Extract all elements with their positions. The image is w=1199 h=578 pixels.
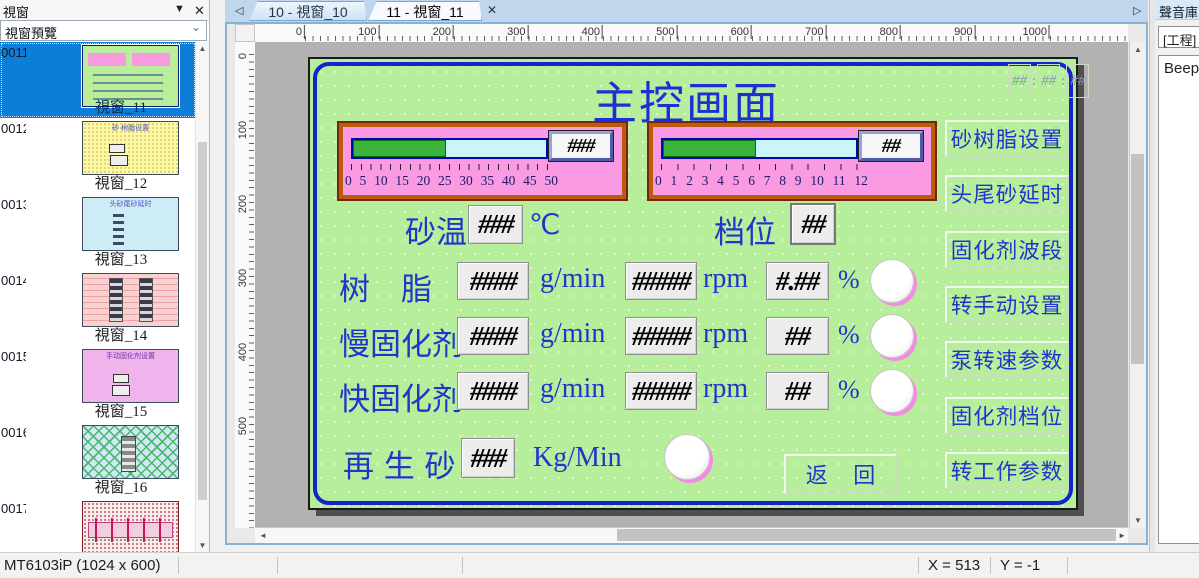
window-thumbnail[interactable]: 头砂尾砂延时 <box>82 197 179 251</box>
tab-scroll-right-icon[interactable]: ▷ <box>1133 4 1141 17</box>
ruler-label: 500 <box>237 411 249 441</box>
dosing-row: 慢固化剂####g/min#####rpm##% <box>339 316 959 362</box>
window-list-item[interactable]: 0012砂·树脂设置視窗_12 <box>0 118 196 194</box>
statusbar-divider <box>277 557 278 574</box>
cursor-y-coordinate: Y = -1 <box>1000 557 1040 574</box>
ruler-corner <box>235 24 255 42</box>
speed-value-display[interactable]: ##### <box>625 317 697 355</box>
preview-mode-label: 視窗預覽 <box>5 23 57 42</box>
pilot-lamp[interactable] <box>870 369 914 413</box>
preview-mode-select[interactable]: 視窗預覽 ⌄ <box>0 20 207 41</box>
thumbnail-title: 手动固化剂设置 <box>83 351 178 361</box>
ruler-label: 200 <box>237 189 249 219</box>
dosing-row: 快固化剂####g/min#####rpm##% <box>339 371 959 417</box>
window-thumbnail[interactable] <box>82 425 179 479</box>
regen-sand-unit: Kg/Min <box>533 442 622 474</box>
flow-value-display[interactable]: #### <box>457 372 529 410</box>
window-list-item[interactable]: 0011視窗_11 <box>0 42 196 118</box>
menu-button[interactable]: 固化剂档位 <box>945 397 1069 434</box>
sound-source-select[interactable]: [工程] <box>1158 26 1199 48</box>
thumbnail-title: 头砂尾砂延时 <box>83 199 178 209</box>
scroll-down-icon[interactable]: ▼ <box>1134 516 1142 525</box>
window-list-item[interactable]: 0016視窗_16 <box>0 422 196 498</box>
horizontal-ruler: 01002003004005006007008009001000 <box>255 24 1128 43</box>
ruler-label: 400 <box>582 25 603 39</box>
window-thumbnail[interactable]: 砂·树脂设置 <box>82 121 179 175</box>
ruler-label: 900 <box>954 25 975 39</box>
speed-unit-label: rpm <box>703 373 748 405</box>
statusbar-divider <box>918 557 919 574</box>
sidebar-scrollbar[interactable]: ▲ ▼ <box>195 42 209 552</box>
window-thumbnail[interactable]: 手动固化剂设置 <box>82 349 179 403</box>
flow-unit-label: g/min <box>540 373 605 405</box>
tab-bar: ◁ 10 - 視窗_10 11 - 視窗_11 ✕ ▷ <box>225 0 1148 22</box>
speed-value-display[interactable]: ##### <box>625 372 697 410</box>
window-name: 視窗_14 <box>56 324 186 345</box>
tab-label: 10 - 視窗_10 <box>268 4 347 20</box>
statusbar-divider <box>462 557 463 574</box>
window-list-item[interactable]: 0014視窗_14 <box>0 270 196 346</box>
menu-button[interactable]: 泵转速参数 <box>945 341 1069 378</box>
window-list-item[interactable]: 0017視窗_17 <box>0 498 196 552</box>
menu-button[interactable]: 砂树脂设置 <box>945 120 1069 157</box>
ruler-label: 100 <box>237 115 249 145</box>
percent-value-display[interactable]: ## <box>766 317 829 355</box>
vertical-ruler: 0100200300400500 <box>235 42 256 528</box>
window-list-item[interactable]: 0015手动固化剂设置視窗_15 <box>0 346 196 422</box>
window-name: 視窗_12 <box>56 172 186 193</box>
app-window: 視窗 ▼ ✕ 視窗預覽 ⌄ 0011視窗_110012砂·树脂设置視窗_1200… <box>0 0 1199 578</box>
ruler-ticks <box>249 54 254 528</box>
window-name: 視窗_16 <box>56 476 186 497</box>
pilot-lamp[interactable] <box>664 434 710 480</box>
ruler-label: 0 <box>237 42 249 71</box>
window-number: 0015 <box>1 349 26 364</box>
window-number: 0011 <box>1 45 26 60</box>
speed-unit-label: rpm <box>703 318 748 350</box>
statusbar-divider <box>990 557 991 574</box>
sound-library-panel: 聲音庫 [工程] Beep <box>1155 0 1199 552</box>
ruler-label: 600 <box>731 25 752 39</box>
cursor-x-coordinate: X = 513 <box>928 557 980 574</box>
device-model: MT6103iP (1024 x 600) <box>4 557 160 574</box>
flow-unit-label: g/min <box>540 263 605 295</box>
speed-value-display[interactable]: ##### <box>625 262 697 300</box>
window-name: 視窗_13 <box>56 248 186 269</box>
flow-unit-label: g/min <box>540 318 605 350</box>
pilot-lamp[interactable] <box>870 259 914 303</box>
tab-scroll-left-icon[interactable]: ◁ <box>235 4 243 17</box>
window-list: 0011視窗_110012砂·树脂设置視窗_120013头砂尾砂延时視窗_130… <box>0 42 196 552</box>
statusbar-divider <box>1067 557 1068 574</box>
tab-label: 11 - 視窗_11 <box>386 4 463 20</box>
scrollbar-thumb[interactable] <box>198 142 207 500</box>
status-bar: MT6103iP (1024 x 600) X = 513 Y = -1 <box>0 552 1199 578</box>
menu-button[interactable]: 头尾砂延时 <box>945 175 1069 212</box>
row-label: 快固化剂 <box>339 374 463 419</box>
ruler-label: 800 <box>880 25 901 39</box>
menu-button[interactable]: 固化剂波段 <box>945 231 1069 268</box>
sound-list[interactable]: Beep <box>1158 55 1199 544</box>
window-panel: 視窗 ▼ ✕ 視窗預覽 ⌄ 0011視窗_110012砂·树脂设置視窗_1200… <box>0 0 210 552</box>
window-number: 0017 <box>1 501 26 516</box>
percent-value-display[interactable]: ## <box>766 372 829 410</box>
window-name: 視窗_15 <box>56 400 186 421</box>
hmi-screen[interactable]: 主控画面 ## : ## : ## 05101520253035404550 #… <box>308 57 1078 510</box>
menu-button[interactable]: 转工作参数 <box>945 452 1069 489</box>
window-number: 0012 <box>1 121 26 136</box>
back-button[interactable]: 返 回 <box>784 454 897 494</box>
sound-panel-title: 聲音庫 <box>1155 0 1199 20</box>
window-panel-header: 視窗 ▼ ✕ <box>0 0 209 21</box>
scrollbar-thumb[interactable] <box>617 529 1116 541</box>
window-list-item[interactable]: 0013头砂尾砂延时視窗_13 <box>0 194 196 270</box>
window-name: 視窗_11 <box>56 96 186 117</box>
percent-unit-label: % <box>838 320 860 350</box>
regen-sand-value[interactable]: ### <box>461 438 515 478</box>
scroll-up-icon[interactable]: ▲ <box>1134 45 1142 54</box>
speed-unit-label: rpm <box>703 263 748 295</box>
tab-close-icon[interactable]: ✕ <box>487 3 497 17</box>
window-number: 0014 <box>1 273 26 288</box>
ruler-label: 300 <box>237 263 249 293</box>
panel-close-icon[interactable]: ✕ <box>194 3 205 19</box>
ruler-label: 500 <box>656 25 677 39</box>
ruler-label: 300 <box>507 25 528 39</box>
window-thumbnail[interactable] <box>82 273 179 327</box>
flow-value-display[interactable]: #### <box>457 317 529 355</box>
ruler-label: 700 <box>805 25 826 39</box>
percent-unit-label: % <box>838 265 860 295</box>
window-number: 0013 <box>1 197 26 212</box>
ruler-label: 400 <box>237 337 249 367</box>
panel-menu-icon[interactable]: ▼ <box>174 3 185 15</box>
window-number: 0016 <box>1 425 26 440</box>
scroll-up-icon[interactable]: ▲ <box>196 44 209 53</box>
scroll-right-icon[interactable]: ► <box>1118 531 1126 540</box>
window-thumbnail[interactable] <box>82 501 179 552</box>
sound-list-item[interactable]: Beep <box>1164 60 1199 77</box>
percent-unit-label: % <box>838 375 860 405</box>
thumbnail-title: 砂·树脂设置 <box>83 123 178 133</box>
row-label: 树 脂 <box>339 264 432 309</box>
ruler-label: 200 <box>433 25 454 39</box>
design-canvas[interactable]: 主控画面 ## : ## : ## 05101520253035404550 #… <box>255 42 1128 528</box>
ruler-label: 1000 <box>1023 25 1050 39</box>
regen-sand-label: 再 生 砂 <box>343 441 457 486</box>
scrollbar-thumb[interactable] <box>1131 154 1144 364</box>
row-label: 慢固化剂 <box>339 319 463 364</box>
scroll-down-icon[interactable]: ▼ <box>196 541 209 550</box>
document-pane: 01002003004005006007008009001000 0100200… <box>225 22 1148 545</box>
ruler-label: 0 <box>296 25 305 39</box>
percent-value-display[interactable]: #.## <box>766 262 829 300</box>
vertical-scrollbar[interactable]: ▲ ▼ <box>1129 42 1146 528</box>
ruler-label: 100 <box>358 25 379 39</box>
chevron-down-icon: ⌄ <box>191 20 201 34</box>
pilot-lamp[interactable] <box>870 314 914 358</box>
flow-value-display[interactable]: #### <box>457 262 529 300</box>
horizontal-scrollbar[interactable]: ◄ ► <box>255 527 1128 543</box>
tab-window-10[interactable]: 10 - 視窗_10 <box>249 1 367 21</box>
statusbar-divider <box>178 557 179 574</box>
dosing-row: 树 脂####g/min#####rpm#.##% <box>339 261 959 307</box>
panel-title: 視窗 <box>3 2 29 21</box>
ruler-ticks <box>305 36 1128 41</box>
tab-window-11[interactable]: 11 - 視窗_11 <box>368 1 482 21</box>
scroll-left-icon[interactable]: ◄ <box>259 531 267 540</box>
menu-button[interactable]: 转手动设置 <box>945 286 1069 323</box>
